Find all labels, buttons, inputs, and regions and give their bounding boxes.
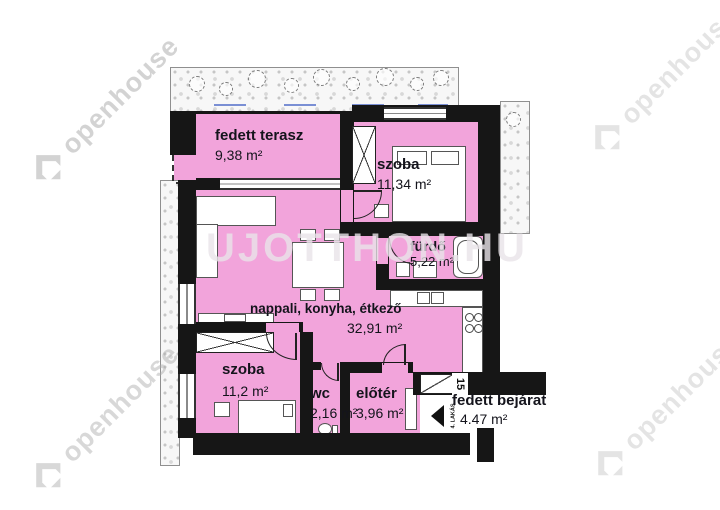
bedroom-window: [384, 107, 446, 120]
plant-icon: [506, 112, 521, 127]
bedroom-window: [178, 374, 196, 418]
room-area: 3,96 m²: [356, 405, 403, 421]
watermark-openhouse-bottom-right: openhouse: [583, 324, 720, 490]
plant-icon: [346, 77, 360, 91]
room-area: 2,16 m²: [310, 405, 357, 421]
room-name: nappali, konyha, étkező: [250, 301, 402, 317]
door-opening: [341, 190, 353, 222]
room-label-living: nappali, konyha, étkező 32,91 m²: [250, 301, 402, 336]
living-window: [178, 284, 196, 324]
watermark-openhouse-top-right: openhouse: [580, 0, 720, 164]
plant-icon: [284, 78, 299, 93]
room-area: 11,34 m²: [377, 176, 431, 192]
room-name: fedett terasz: [215, 127, 303, 144]
pillow: [431, 151, 459, 165]
room-area: 4.47 m²: [460, 411, 546, 427]
room-name: szoba: [377, 156, 431, 173]
hatch-strip-left: [160, 180, 180, 466]
room-label-terrace: fedett terasz 9,38 m²: [215, 127, 303, 163]
wall-pillar: [477, 428, 494, 462]
terrace-sliding-window: [220, 178, 340, 190]
garden-edge-dash: [284, 104, 316, 106]
room-name: előtér: [356, 385, 403, 402]
tv-set: [224, 314, 246, 322]
watermark-text: openhouse: [617, 326, 720, 456]
plant-icon: [219, 82, 233, 96]
terrace-open-edge: [172, 155, 174, 181]
door-width-text: 15: [454, 378, 466, 390]
wall-segment: [170, 111, 354, 114]
chair: [324, 289, 340, 301]
cooktop-burner: [474, 324, 483, 333]
watermark-ujotthon-center: UJOTTHON.HU: [206, 226, 528, 271]
wall-segment: [193, 433, 470, 455]
room-name: szoba: [222, 361, 268, 378]
wall-segment: [478, 122, 500, 236]
room-name: wc: [310, 385, 357, 402]
wall-segment: [313, 362, 321, 370]
room-area: 9,38 m²: [215, 147, 303, 163]
room-label-bedroom-upper: szoba 11,34 m²: [377, 156, 431, 192]
door-leaf: [404, 344, 406, 365]
room-area: 11,2 m²: [222, 383, 268, 399]
kitchen-sink: [431, 292, 444, 304]
room-label-bedroom-lower: szoba 11,2 m²: [222, 361, 268, 399]
floor-plan-canvas: 15 4. LAKÁS fedett terasz 9,38 m² szoba …: [0, 0, 720, 510]
watermark-text: openhouse: [55, 30, 185, 160]
room-name: fedett bejárat: [452, 392, 546, 409]
sofa: [196, 196, 276, 226]
room-label-wc: wc 2,16 m²: [310, 385, 357, 421]
watermark-text: openhouse: [614, 0, 720, 130]
door-leaf: [295, 333, 297, 360]
plant-icon: [313, 69, 330, 86]
door-leaf: [337, 363, 339, 381]
chair: [300, 289, 316, 301]
arrow-left-icon: [430, 404, 445, 428]
garden-edge-dash: [214, 104, 246, 106]
wall-pillar: [170, 111, 196, 155]
wall-segment: [196, 178, 220, 190]
wall-segment: [376, 279, 500, 290]
cooktop-burner: [474, 313, 483, 322]
plant-icon: [433, 70, 449, 86]
plant-icon: [189, 76, 205, 92]
room-area: 32,91 m²: [347, 320, 402, 336]
plant-icon: [410, 77, 424, 91]
pillow: [283, 404, 293, 417]
plant-icon: [376, 68, 394, 86]
cooktop-burner: [465, 324, 474, 333]
wardrobe-shaft: [352, 126, 376, 184]
room-label-entrance: fedett bejárat 4.47 m²: [452, 392, 546, 427]
kitchen-sink: [417, 292, 430, 304]
nightstand: [214, 402, 230, 417]
plant-icon: [248, 70, 266, 88]
watermark-openhouse-top-left: openhouse: [21, 28, 187, 194]
cooktop-burner: [465, 313, 474, 322]
entrance-door: [420, 374, 453, 394]
room-label-hall: előtér 3,96 m²: [356, 385, 403, 421]
